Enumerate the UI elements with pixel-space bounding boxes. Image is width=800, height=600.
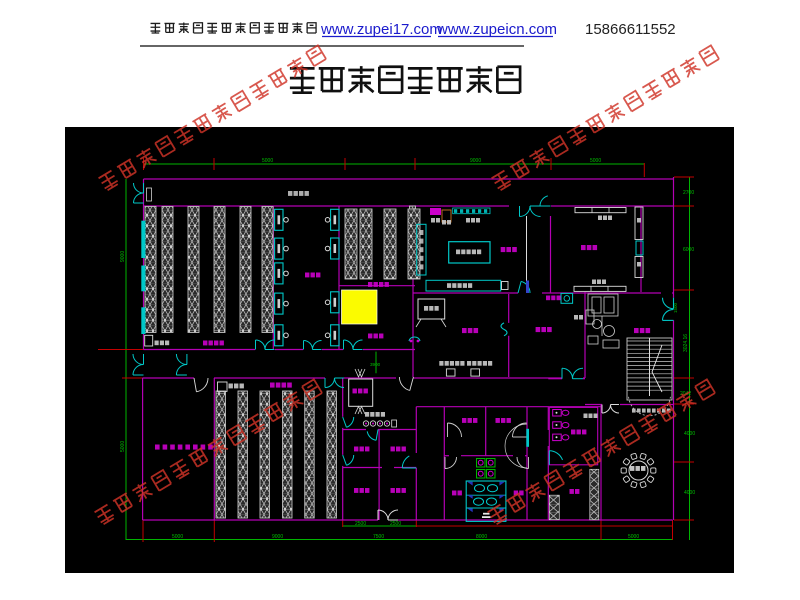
svg-text:4000: 4000 xyxy=(684,490,695,496)
svg-text:5000: 5000 xyxy=(628,534,639,540)
svg-text:www.zupei17.com: www.zupei17.com xyxy=(320,21,442,38)
svg-text:9000: 9000 xyxy=(470,158,481,164)
svg-text:7500: 7500 xyxy=(373,534,384,540)
svg-text:9000: 9000 xyxy=(120,251,126,262)
svg-text:2700: 2700 xyxy=(683,190,694,196)
svg-text:4000: 4000 xyxy=(684,431,695,437)
svg-text:3900: 3900 xyxy=(370,362,381,367)
svg-text:3024.16: 3024.16 xyxy=(683,334,689,352)
svg-text:5000: 5000 xyxy=(120,441,126,452)
svg-text:5000: 5000 xyxy=(590,158,601,164)
svg-text:9000: 9000 xyxy=(272,534,283,540)
svg-text:5000: 5000 xyxy=(262,158,273,164)
svg-text:8000: 8000 xyxy=(476,534,487,540)
svg-text:www.zupeicn.com: www.zupeicn.com xyxy=(436,21,557,38)
svg-text:1500: 1500 xyxy=(673,302,678,313)
svg-text:15866611552: 15866611552 xyxy=(585,21,676,38)
svg-text:2500: 2500 xyxy=(390,521,401,527)
svg-text:6000: 6000 xyxy=(683,247,694,253)
svg-text:2500: 2500 xyxy=(355,521,366,527)
svg-text:5000: 5000 xyxy=(172,534,183,540)
